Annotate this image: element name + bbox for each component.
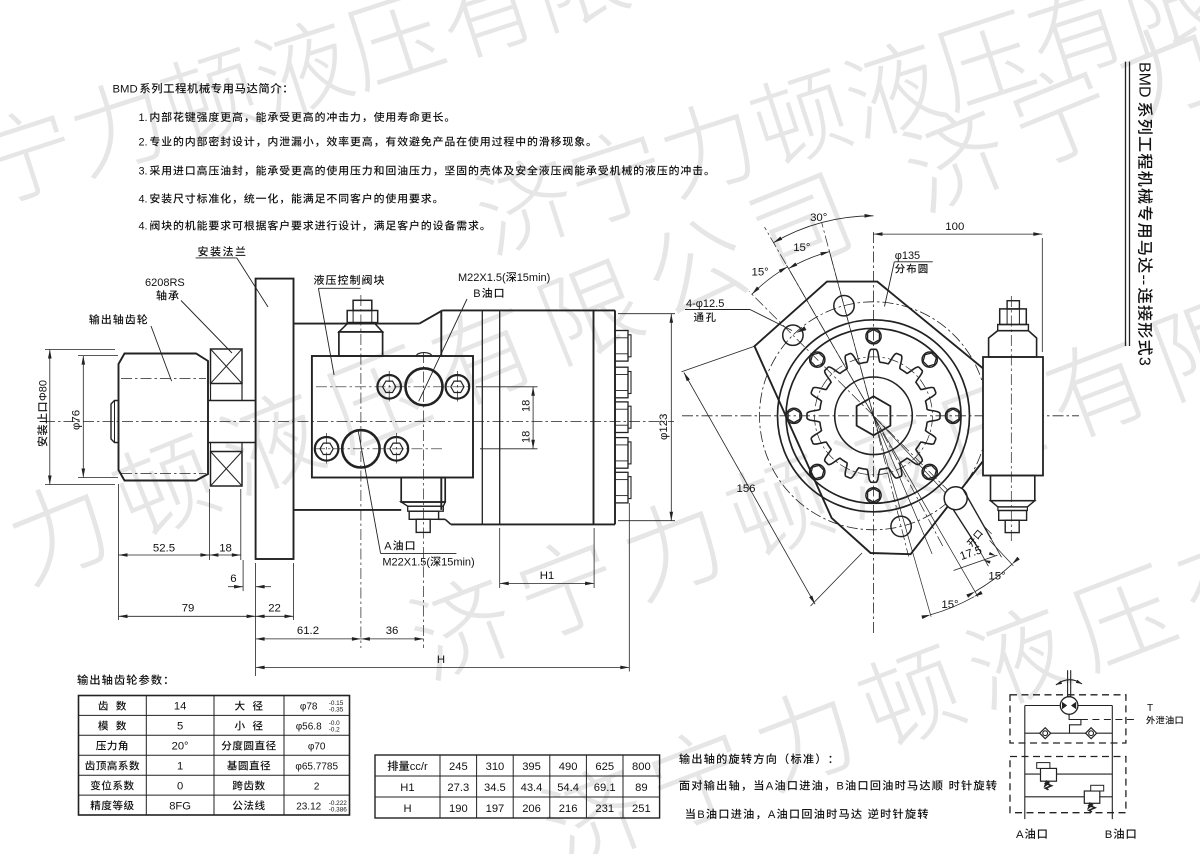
svg-text:156: 156 [737,483,756,495]
svg-text:4.: 4. [139,194,148,206]
svg-text:79: 79 [182,603,195,615]
svg-text:A: A [766,781,774,793]
svg-text:-0.2: -0.2 [329,727,340,734]
svg-text:52.5: 52.5 [153,543,175,555]
svg-text:--: -- [1135,275,1152,286]
svg-text:89: 89 [635,782,647,794]
svg-text:15°: 15° [941,599,958,611]
svg-text:190: 190 [449,803,468,815]
svg-text:251: 251 [632,803,651,815]
svg-text:61.2: 61.2 [297,625,319,637]
svg-text:4.: 4. [139,221,148,233]
svg-text:54.4: 54.4 [557,782,579,794]
svg-text:A: A [1016,829,1024,841]
svg-text:490: 490 [559,761,578,773]
svg-text:2.: 2. [139,137,148,149]
svg-text:M22X1.5(: M22X1.5( [382,557,430,569]
svg-text:6208RS: 6208RS [145,277,185,289]
svg-text:H1: H1 [400,782,414,794]
svg-text:8FG: 8FG [169,800,191,812]
svg-text:BMD: BMD [1135,62,1152,98]
svg-text:BMD: BMD [113,84,138,96]
svg-text:34.5: 34.5 [484,782,506,794]
svg-text:2: 2 [314,781,320,792]
svg-text:625: 625 [595,761,614,773]
svg-text:4-φ12.5: 4-φ12.5 [686,298,724,310]
svg-text:15°: 15° [988,571,1005,583]
svg-text:A: A [768,809,776,821]
svg-text:800: 800 [632,761,651,773]
svg-text:197: 197 [486,803,505,815]
svg-text:-0.386: -0.386 [329,806,348,813]
svg-text:φ123: φ123 [658,414,670,440]
svg-text:18: 18 [219,543,232,555]
svg-text:Φ80: Φ80 [38,380,50,401]
svg-text:15min): 15min) [441,557,475,569]
svg-text:231: 231 [595,803,614,815]
svg-text:-0.35: -0.35 [329,707,344,714]
svg-text:18: 18 [521,400,533,412]
svg-text:69.1: 69.1 [594,782,616,794]
svg-text:B: B [473,288,480,300]
svg-text:B: B [836,781,843,793]
svg-text:0: 0 [177,780,183,792]
svg-text:18: 18 [521,431,533,443]
svg-text:φ135: φ135 [895,250,921,262]
svg-text:6: 6 [230,573,236,585]
svg-text:216: 216 [559,803,578,815]
svg-text:15min): 15min) [517,272,551,284]
svg-text:H1: H1 [540,570,555,582]
svg-text:A: A [384,541,392,553]
svg-text:φ56.8: φ56.8 [296,722,322,733]
svg-text:100: 100 [945,221,964,233]
svg-text:1.: 1. [139,112,148,124]
svg-text:B: B [1105,829,1113,841]
svg-text:23.12: 23.12 [296,801,321,812]
svg-text:5: 5 [177,721,183,733]
svg-text:cc/r: cc/r [410,761,428,773]
svg-text:15°: 15° [793,242,810,254]
svg-text:15°: 15° [752,267,769,279]
svg-text:1: 1 [177,761,183,773]
svg-text:φ76: φ76 [71,410,83,430]
svg-text:27.3: 27.3 [447,782,469,794]
svg-text:H: H [404,803,412,815]
svg-text:H: H [437,654,445,666]
svg-text:395: 395 [522,761,541,773]
svg-text:3.: 3. [139,166,148,178]
svg-text:T: T [1147,703,1153,714]
svg-text:3: 3 [1135,357,1152,366]
svg-text:310: 310 [486,761,505,773]
svg-text:φ70: φ70 [308,742,326,753]
svg-text:245: 245 [449,761,468,773]
svg-text:43.4: 43.4 [521,782,543,794]
svg-text:φ65.7785: φ65.7785 [295,762,338,773]
svg-text:36: 36 [386,625,399,637]
svg-text:φ78: φ78 [300,702,318,713]
svg-text:30°: 30° [810,212,827,224]
svg-text:22: 22 [268,603,281,615]
svg-text:14: 14 [174,701,186,713]
svg-text:B: B [697,809,704,821]
svg-text:206: 206 [522,803,541,815]
svg-text:20°: 20° [172,741,189,753]
svg-text:M22X1.5(: M22X1.5( [458,272,506,284]
